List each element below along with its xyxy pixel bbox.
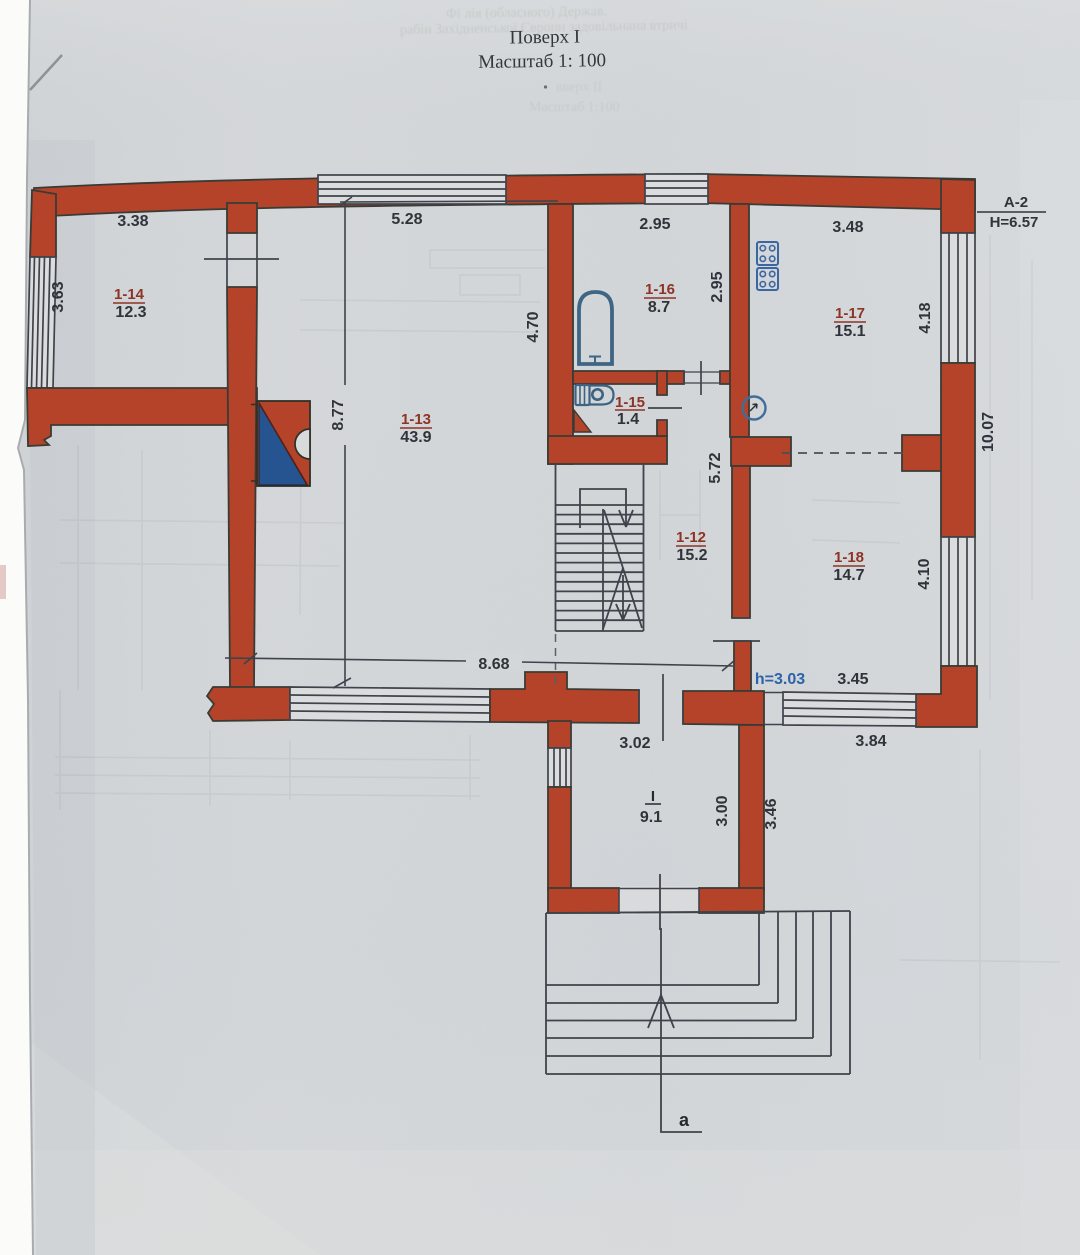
svg-text:Поверх І: Поверх І [509,27,580,49]
svg-text:3.45: 3.45 [837,671,868,688]
svg-text:1-17: 1-17 [835,305,865,322]
svg-text:3.63: 3.63 [50,281,67,312]
svg-text:3.48: 3.48 [832,219,863,236]
svg-text:14.7: 14.7 [833,567,864,584]
svg-text:а: а [679,1110,690,1130]
svg-text:3.38: 3.38 [117,213,148,230]
svg-text:Н=6.57: Н=6.57 [990,214,1039,231]
svg-text:8.68: 8.68 [478,656,509,673]
svg-text:2.95: 2.95 [709,271,726,302]
svg-text:10.07: 10.07 [980,412,997,452]
svg-text:І: І [651,788,655,805]
svg-text:3.84: 3.84 [855,733,886,750]
svg-text:15.2: 15.2 [676,547,707,564]
svg-text:4.10: 4.10 [916,558,933,589]
svg-text:Масштаб 1:100: Масштаб 1:100 [529,100,620,115]
svg-text:4.70: 4.70 [525,311,542,342]
svg-text:1-16: 1-16 [645,281,675,298]
svg-text:1-12: 1-12 [676,529,706,546]
svg-text:5.28: 5.28 [391,211,422,228]
svg-text:15.1: 15.1 [834,323,865,340]
svg-text:43.9: 43.9 [400,429,431,446]
svg-text:Масштаб 1: 100: Масштаб 1: 100 [478,50,606,73]
svg-text:8.7: 8.7 [648,299,670,316]
svg-text:1-14: 1-14 [114,286,145,303]
svg-text:3.02: 3.02 [619,735,650,752]
svg-text:h=3.03: h=3.03 [755,671,805,688]
svg-text:вверх ІІ: вверх ІІ [556,80,603,95]
svg-text:5.72: 5.72 [707,452,724,483]
svg-text:9.1: 9.1 [640,809,662,826]
svg-text:1-18: 1-18 [834,549,864,566]
svg-text:1-13: 1-13 [401,411,431,428]
svg-text:1.4: 1.4 [617,411,639,428]
svg-text:12.3: 12.3 [115,304,146,321]
svg-text:3.46: 3.46 [763,798,780,829]
svg-text:2.95: 2.95 [639,216,670,233]
svg-text:3.00: 3.00 [714,795,731,826]
svg-text:4.18: 4.18 [917,302,934,333]
svg-text:А-2: А-2 [1004,194,1028,211]
svg-text:1-15: 1-15 [615,394,645,411]
svg-text:8.77: 8.77 [330,399,347,430]
